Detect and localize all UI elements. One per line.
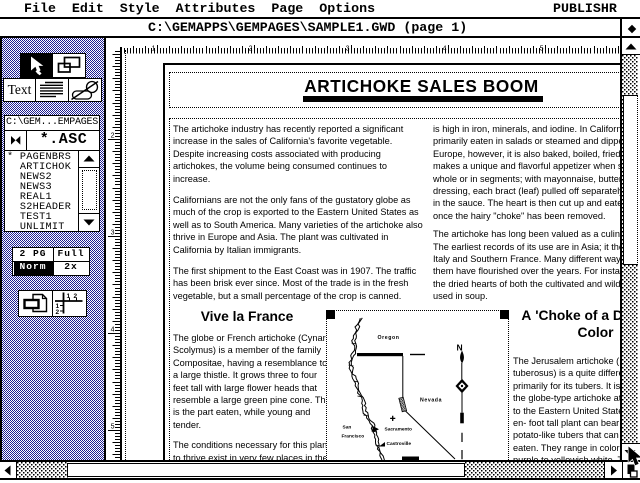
- svg-text:5: 5: [110, 424, 114, 431]
- svg-text:4: 4: [110, 327, 114, 334]
- svg-text:San: San: [343, 425, 352, 431]
- svg-text:2: 2: [74, 293, 78, 300]
- svg-text:Castroville: Castroville: [387, 441, 412, 447]
- svg-text:Francisco: Francisco: [342, 434, 365, 440]
- svg-text:N: N: [457, 343, 463, 353]
- svg-text:5: 5: [539, 46, 543, 53]
- svg-text:4: 4: [442, 46, 446, 53]
- svg-text:2: 2: [110, 133, 114, 140]
- svg-text:2: 2: [56, 309, 60, 315]
- svg-text:2: 2: [248, 46, 252, 53]
- svg-text:Nevada: Nevada: [420, 398, 442, 404]
- svg-text:1: 1: [151, 46, 155, 53]
- svg-text:1: 1: [67, 293, 71, 300]
- svg-text:3: 3: [110, 230, 114, 237]
- svg-text:Sacramento: Sacramento: [385, 427, 413, 433]
- svg-text:Oregon: Oregon: [378, 335, 400, 341]
- svg-text:3: 3: [345, 46, 349, 53]
